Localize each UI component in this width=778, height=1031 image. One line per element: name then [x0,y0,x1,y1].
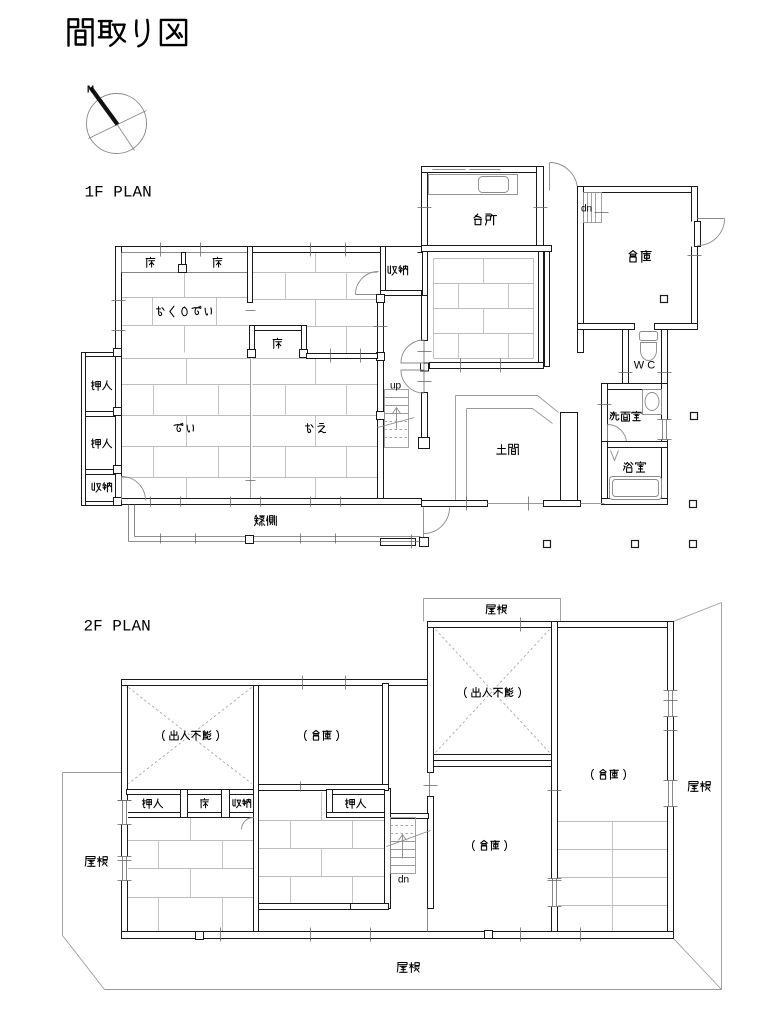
svg-text:up: up [390,381,402,392]
svg-text:1F PLAN: 1F PLAN [85,184,152,202]
svg-text:dn: dn [581,204,592,215]
svg-text:2F PLAN: 2F PLAN [84,618,151,636]
svg-text:dn: dn [398,875,409,886]
svg-text:N: N [87,85,94,96]
svg-text:W C: W C [634,360,655,372]
